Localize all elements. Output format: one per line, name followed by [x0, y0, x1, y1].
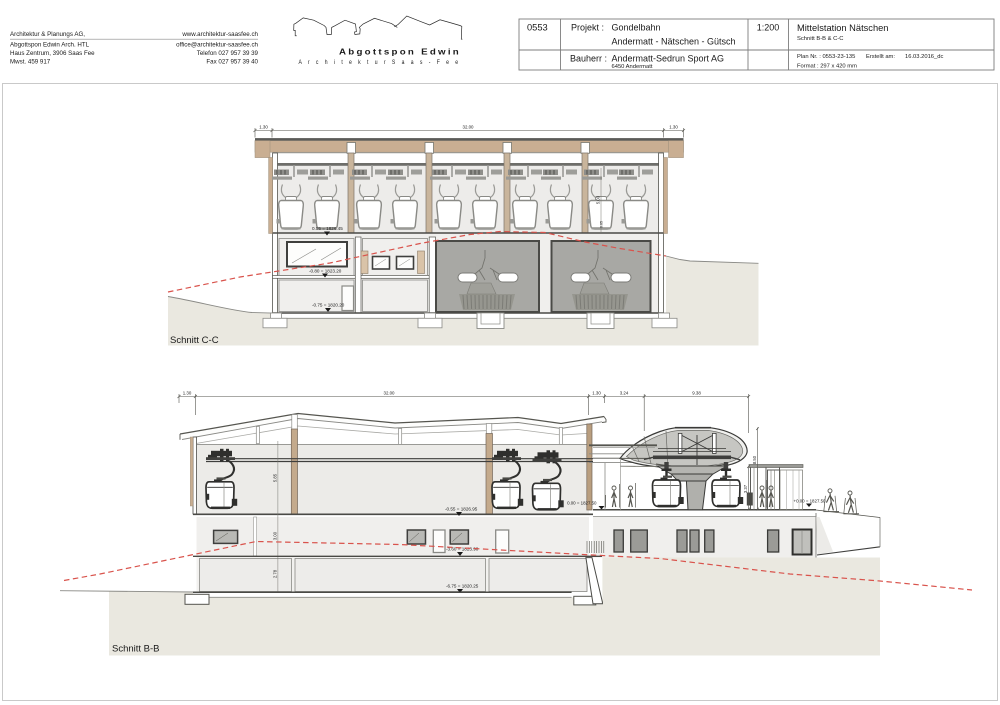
svg-text:office@architektur-saasfee.ch: office@architektur-saasfee.ch — [176, 42, 258, 49]
svg-text:0.55 = 1826.45: 0.55 = 1826.45 — [312, 226, 343, 231]
svg-text:Schnitt B-B: Schnitt B-B — [112, 644, 160, 655]
svg-text:www.architektur-saasfee.ch: www.architektur-saasfee.ch — [181, 31, 258, 38]
svg-text:5.85: 5.85 — [273, 473, 278, 482]
svg-text:Bauherr :: Bauherr : — [570, 54, 607, 64]
svg-text:Andermatt-Sedrun Sport AG: Andermatt-Sedrun Sport AG — [612, 54, 725, 64]
svg-text:1:200: 1:200 — [757, 23, 780, 33]
svg-text:Plan Nr. : 0553-23-135: Plan Nr. : 0553-23-135 — [797, 54, 855, 60]
svg-text:3.00: 3.00 — [273, 531, 278, 540]
svg-text:1.30: 1.30 — [259, 125, 268, 130]
svg-text:Mwst. 459 917: Mwst. 459 917 — [10, 59, 51, 66]
svg-text:Architektur & Planungs AG,: Architektur & Planungs AG, — [10, 31, 85, 38]
svg-text:2.78: 2.78 — [273, 569, 278, 578]
svg-text:0.00 = 1827.50: 0.00 = 1827.50 — [567, 501, 597, 506]
svg-text:Schnitt B-B & C-C: Schnitt B-B & C-C — [797, 36, 843, 42]
svg-text:A r c h i t e k t u r S a a: A r c h i t e k t u r S a a s - F e e — [299, 59, 461, 66]
svg-text:32.00: 32.00 — [463, 125, 475, 130]
svg-text:0553: 0553 — [527, 23, 548, 33]
svg-text:9.38: 9.38 — [692, 391, 701, 396]
svg-text:Erstellt am:: Erstellt am: — [866, 54, 895, 60]
svg-text:1.30: 1.30 — [669, 125, 678, 130]
svg-text:0.65: 0.65 — [600, 221, 604, 228]
svg-text:8.50: 8.50 — [752, 455, 757, 464]
svg-text:Gondelbahn: Gondelbahn — [612, 23, 661, 33]
svg-text:Andermatt - Nätschen - Gütsch: Andermatt - Nätschen - Gütsch — [612, 37, 736, 47]
svg-text:Format : 297 x 420 mm: Format : 297 x 420 mm — [797, 64, 857, 70]
svg-text:1.30: 1.30 — [183, 391, 192, 396]
svg-text:Abgottspon Edwin Arch. HTL: Abgottspon Edwin Arch. HTL — [10, 42, 90, 49]
svg-text:Telefon 027 957 39 39: Telefon 027 957 39 39 — [197, 50, 259, 57]
svg-text:+0.00 = 1827.50: +0.00 = 1827.50 — [794, 498, 827, 503]
svg-text:1.30: 1.30 — [592, 391, 601, 396]
svg-text:-0.80 = 1823.20: -0.80 = 1823.20 — [309, 268, 342, 273]
svg-text:Mittelstation Nätschen: Mittelstation Nätschen — [797, 23, 888, 33]
svg-text:Fax 027 957 39 40: Fax 027 957 39 40 — [206, 59, 258, 66]
svg-text:3.37: 3.37 — [743, 484, 748, 493]
svg-text:Haus Zentrum, 3906 Saas Fee: Haus Zentrum, 3906 Saas Fee — [10, 50, 95, 57]
svg-text:-6.75 = 1820.25: -6.75 = 1820.25 — [446, 584, 479, 589]
svg-text:3.24: 3.24 — [620, 391, 629, 396]
svg-text:-0.55 = 1826.95: -0.55 = 1826.95 — [445, 507, 478, 512]
svg-text:5.00: 5.00 — [596, 195, 601, 204]
svg-text:Schnitt C-C: Schnitt C-C — [170, 335, 219, 346]
svg-text:6450 Andermatt: 6450 Andermatt — [612, 64, 653, 70]
svg-text:Projekt :: Projekt : — [571, 23, 604, 33]
svg-text:16.03.2016_dc: 16.03.2016_dc — [905, 54, 943, 60]
svg-text:32.00: 32.00 — [384, 391, 396, 396]
svg-text:Abgottspon Edwin: Abgottspon Edwin — [339, 47, 461, 57]
svg-text:-0.75 = 1820.20: -0.75 = 1820.20 — [312, 303, 345, 308]
